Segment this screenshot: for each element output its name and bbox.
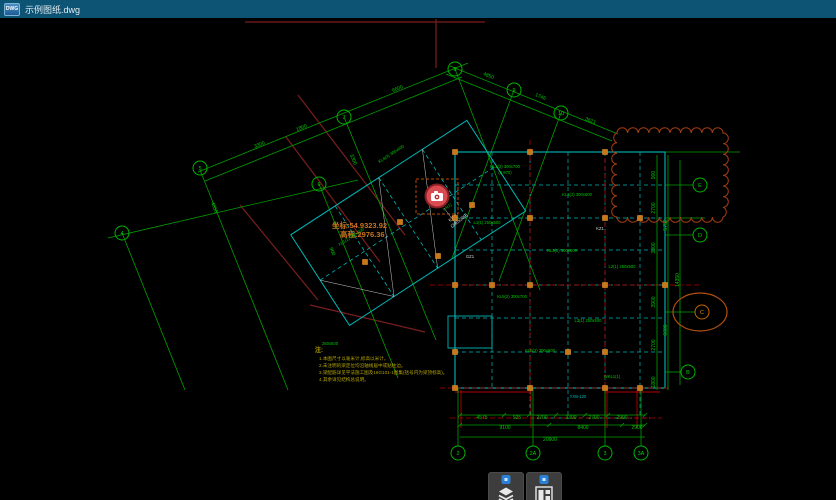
column-marker xyxy=(528,283,533,288)
svg-text:2: 2 xyxy=(456,451,459,457)
window-title: 示例图纸.dwg xyxy=(25,3,80,16)
layers-button-badge xyxy=(502,475,511,484)
note-line: 4.其余详见结构总说明。 xyxy=(319,376,369,383)
columns-layer xyxy=(363,150,668,391)
beam-label: KL2(2) 300x600 xyxy=(562,192,592,197)
grid-bubble: 3 xyxy=(598,446,612,460)
svg-text:C: C xyxy=(700,310,704,316)
svg-text:5: 5 xyxy=(198,166,201,172)
column-marker xyxy=(603,216,608,221)
notes-title: 注: xyxy=(315,346,323,354)
beam-label: YXB-120 xyxy=(570,394,587,399)
svg-text:6: 6 xyxy=(317,182,320,188)
beam-label: L2(1) 250x500 xyxy=(608,264,636,269)
grid-bubble: 5 xyxy=(193,161,207,175)
beam-label: KL3(2) 300x600 xyxy=(547,248,577,253)
dim-text: 925 xyxy=(513,415,522,421)
dim-text: 2700 xyxy=(651,339,657,350)
bottom-toolbar xyxy=(488,472,562,500)
dim-text: 900 xyxy=(328,247,337,257)
dim-text: 2700 xyxy=(588,415,599,421)
beam-label: KL1(2) 300x700 xyxy=(490,164,520,169)
column-marker xyxy=(453,350,458,355)
grid-bubble: B xyxy=(681,365,695,379)
svg-text:3: 3 xyxy=(603,451,606,457)
svg-text:7: 7 xyxy=(342,115,345,121)
dim-text: 2900 xyxy=(616,415,627,421)
cad-canvas[interactable]: KZ-1 (300x300) 坐标:54.9323.92 高程:2976.36 … xyxy=(0,18,836,500)
dim-text: 3300 xyxy=(651,242,657,253)
svg-text:B: B xyxy=(686,370,690,376)
column-marker xyxy=(638,216,643,221)
svg-text:10: 10 xyxy=(558,111,564,117)
column-marker xyxy=(638,386,643,391)
grid-bubbles: 8910765422A33AEDCB xyxy=(115,62,709,460)
column-marker xyxy=(453,283,458,288)
app-window: DWG 示例图纸.dwg xyxy=(0,0,836,500)
dim-text: 6600 xyxy=(663,324,669,335)
layouts-button[interactable] xyxy=(526,472,562,500)
beam-label: 250x500 xyxy=(322,341,339,346)
dim-text: 4575 xyxy=(476,415,487,421)
beam-label: KZ1 xyxy=(596,226,604,231)
dim-text: 1800 xyxy=(651,376,657,387)
grid-bubble: 2 xyxy=(451,446,465,460)
red-solid-lines xyxy=(455,390,660,428)
svg-text:E: E xyxy=(698,183,702,189)
dim-text: 3300 xyxy=(253,140,266,150)
dim-text: 14350 xyxy=(675,273,681,287)
grid-bubble: E xyxy=(693,178,707,192)
column-marker xyxy=(363,260,368,265)
dim-text: 6600 xyxy=(391,84,404,94)
dim-text: 3300 xyxy=(348,153,358,166)
grid-bubble: 3A xyxy=(634,446,648,460)
svg-text:D: D xyxy=(698,233,702,239)
notes-block: 1.本图尺寸以毫米计,标高以米计。2.未注明的梁定位均沿轴线居中或贴柱边。3.梁… xyxy=(319,355,447,383)
column-marker xyxy=(566,350,571,355)
dim-text: 1800 xyxy=(295,123,308,133)
note-line: 1.本图尺寸以毫米计,标高以米计。 xyxy=(319,355,388,362)
column-marker xyxy=(453,150,458,155)
column-marker xyxy=(603,350,608,355)
svg-text:3A: 3A xyxy=(638,451,645,457)
column-marker xyxy=(528,386,533,391)
dim-text: 20900 xyxy=(543,437,557,443)
layers-button[interactable] xyxy=(488,472,524,500)
beam-label: GZ1 xyxy=(466,254,475,259)
column-marker xyxy=(663,283,668,288)
grid-bubble: 2A xyxy=(526,446,540,460)
dim-text: 2900 xyxy=(631,425,642,431)
layouts-icon xyxy=(535,486,553,500)
grid-bubble: C xyxy=(695,305,709,319)
grid-bubble: 7 xyxy=(337,110,351,124)
layers-icon xyxy=(497,486,515,500)
note-line: 3.梁配筋详见平法施工图及16G101-1图集(括号内为梁顶标高)。 xyxy=(319,369,447,376)
column-marker xyxy=(398,220,403,225)
svg-text:2A: 2A xyxy=(530,451,537,457)
dimension-chain-lines xyxy=(458,152,740,446)
beam-label: KL6(2) 300x600 xyxy=(525,348,555,353)
column-marker xyxy=(603,283,608,288)
beam-label: WKL1(1) xyxy=(604,374,621,379)
column-marker xyxy=(528,150,533,155)
column-marker xyxy=(436,254,441,259)
layouts-button-badge xyxy=(540,475,549,484)
dim-text: 900 xyxy=(651,171,657,180)
dim-text: 2700 xyxy=(536,415,547,421)
svg-text:9: 9 xyxy=(512,88,515,94)
column-marker xyxy=(470,203,475,208)
dim-text: 3900 xyxy=(651,296,657,307)
dim-text: 4850 xyxy=(209,201,219,214)
beam-label: KL8(3) 300x600 xyxy=(377,143,405,164)
column-marker xyxy=(603,150,608,155)
beam-label: L1(1) 250x500 xyxy=(473,220,501,225)
cad-drawing[interactable]: KZ-1 (300x300) 坐标:54.9323.92 高程:2976.36 … xyxy=(0,18,836,500)
column-marker xyxy=(603,386,608,391)
dim-text: 3621 xyxy=(584,116,597,126)
dim-text: 8400 xyxy=(577,425,588,431)
column-marker xyxy=(528,216,533,221)
svg-text:4: 4 xyxy=(120,231,123,237)
column-marker xyxy=(453,386,458,391)
column-marker xyxy=(453,216,458,221)
grid-bubble: 4 xyxy=(115,226,129,240)
grid-bubble: D xyxy=(693,228,707,242)
column-marker xyxy=(490,283,495,288)
dim-text: 3300 xyxy=(565,415,576,421)
revision-cloud xyxy=(612,128,729,223)
dim-text: 2700 xyxy=(651,202,657,213)
camera-marker[interactable]: KZ-1 (300x300) xyxy=(416,179,469,229)
dwg-file-icon: DWG xyxy=(4,3,20,16)
svg-text:8: 8 xyxy=(453,67,456,73)
beam-label: (5.970) xyxy=(498,170,512,175)
title-bar: DWG 示例图纸.dwg xyxy=(0,0,836,18)
dim-text: 9100 xyxy=(499,425,510,431)
beam-label: L3(1) 250x500 xyxy=(574,318,602,323)
beam-label: KL5(2) 300x700 xyxy=(497,294,527,299)
grid-bubble: 8 xyxy=(448,62,462,76)
dimension-texts: 4575925270033002700290091008400290020900… xyxy=(209,71,681,443)
dim-text: 5750 xyxy=(663,219,669,230)
note-line: 2.未注明的梁定位均沿轴线居中或贴柱边。 xyxy=(319,362,406,369)
